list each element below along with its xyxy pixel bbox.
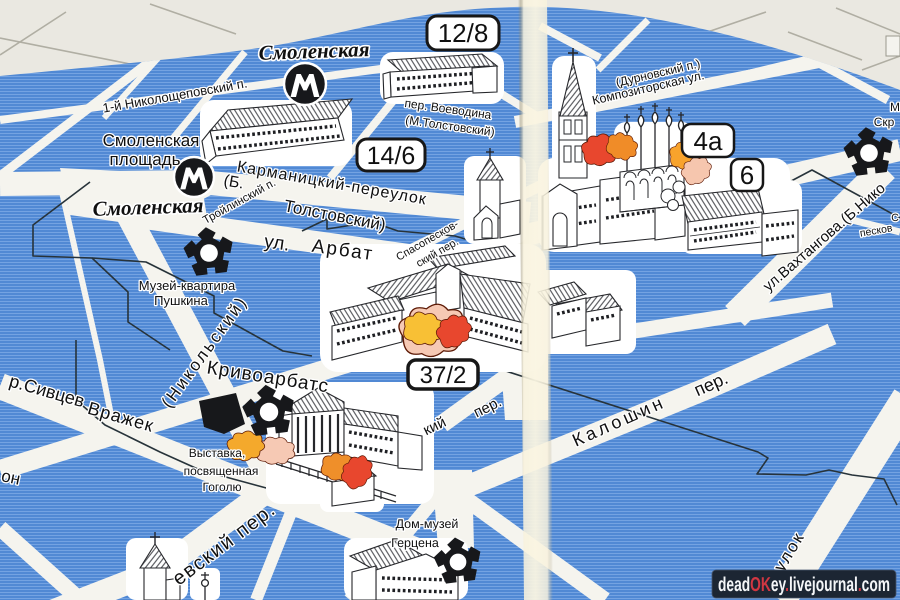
svg-text:ул.: ул. [263,231,291,255]
svg-text:Смоленская: Смоленская [103,131,200,150]
svg-text:Герцена: Герцена [391,536,439,550]
svg-text:6: 6 [740,160,754,190]
svg-text:площадь: площадь [110,150,181,169]
svg-text:Скр: Скр [874,115,895,129]
svg-text:М: М [890,100,900,114]
svg-text:deadOKey.livejournal.com: deadOKey.livejournal.com [718,574,890,596]
svg-text:Музей-квартира: Музей-квартира [139,278,236,293]
svg-text:Смоленская: Смоленская [258,37,370,65]
svg-text:37/2: 37/2 [420,362,467,389]
svg-text:(Б.: (Б. [222,172,245,192]
svg-text:Пушкина: Пушкина [154,293,208,308]
svg-text:Дом-музей: Дом-музей [396,517,459,531]
svg-text:Гоголю: Гоголю [203,480,242,494]
svg-text:14/6: 14/6 [367,142,416,170]
svg-text:12/8: 12/8 [438,18,489,48]
svg-text:С: С [891,212,899,224]
svg-text:4а: 4а [694,126,723,156]
svg-text:Выставка,: Выставка, [189,446,246,460]
svg-text:он: он [0,466,22,489]
svg-text:посвященная: посвященная [184,464,259,478]
svg-text:Смоленская: Смоленская [92,193,204,221]
